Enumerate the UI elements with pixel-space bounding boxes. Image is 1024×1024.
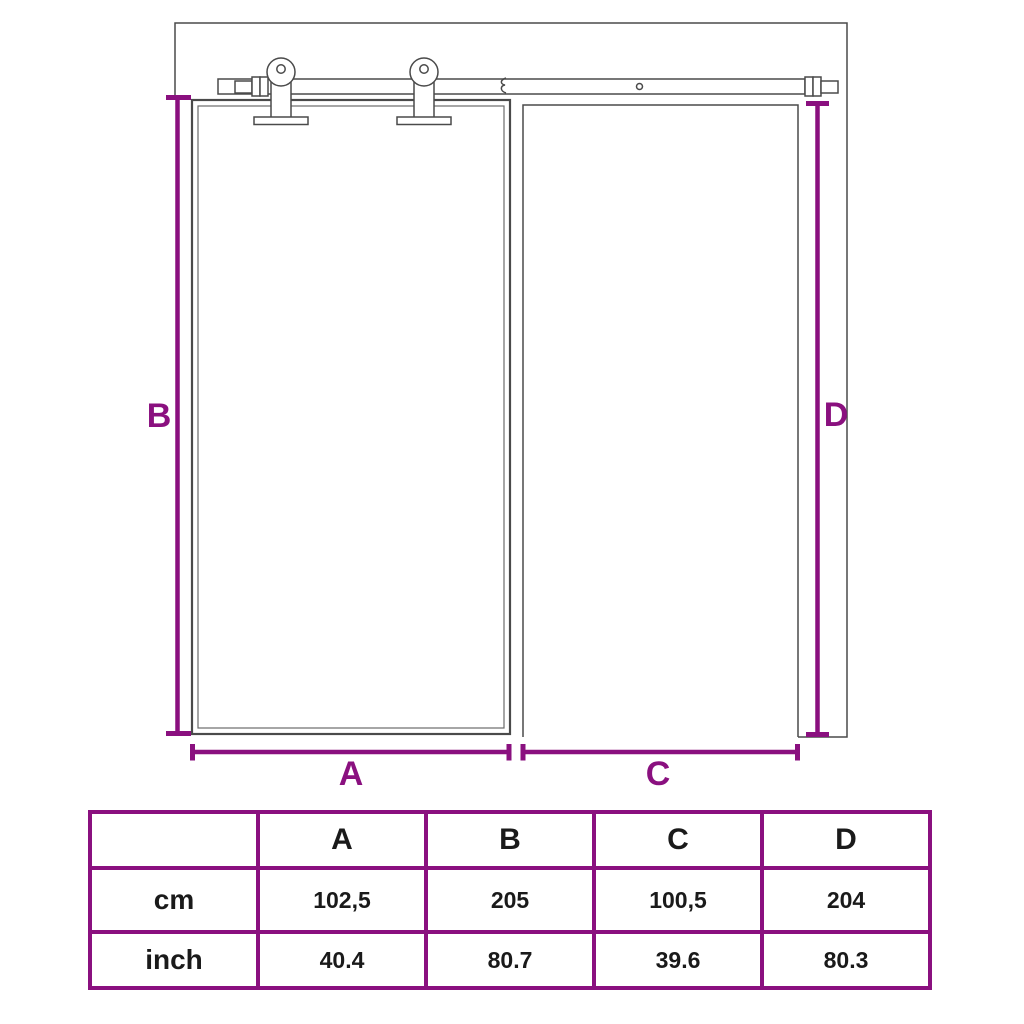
cell-cm-a: 102,5 bbox=[258, 868, 426, 932]
dimension-label-d: D bbox=[824, 396, 849, 434]
dimension-label-a: A bbox=[339, 755, 364, 793]
rail-break-mark bbox=[498, 78, 509, 93]
header-empty-cell bbox=[90, 812, 258, 868]
row-label-cm: cm bbox=[90, 868, 258, 932]
sliding-rail bbox=[218, 77, 838, 96]
header-cell-d: D bbox=[762, 812, 930, 868]
row-label-inch: inch bbox=[90, 932, 258, 988]
header-cell-b: B bbox=[426, 812, 594, 868]
cell-cm-b: 205 bbox=[426, 868, 594, 932]
dimension-line-d: D bbox=[806, 104, 848, 735]
header-cell-a: A bbox=[258, 812, 426, 868]
cell-inch-d: 80.3 bbox=[762, 932, 930, 988]
rail-end-stop-right bbox=[805, 77, 838, 96]
cell-inch-b: 80.7 bbox=[426, 932, 594, 988]
dimension-label-b: B bbox=[147, 397, 172, 435]
doorway-opening bbox=[523, 105, 798, 737]
cell-inch-a: 40.4 bbox=[258, 932, 426, 988]
cell-cm-d: 204 bbox=[762, 868, 930, 932]
dimension-label-c: C bbox=[646, 755, 671, 793]
table-row-cm: cm 102,5 205 100,5 204 bbox=[90, 868, 930, 932]
door-panel bbox=[192, 100, 510, 734]
dimension-line-a: A bbox=[193, 744, 510, 793]
dimensions-table-wrap: A B C D cm 102,5 205 100,5 204 inch 40.4… bbox=[88, 810, 928, 990]
cell-cm-c: 100,5 bbox=[594, 868, 762, 932]
table-header-row: A B C D bbox=[90, 812, 930, 868]
product-dimension-sheet: B D A C bbox=[0, 0, 1024, 1024]
dimension-line-c: C bbox=[523, 744, 798, 793]
header-cell-c: C bbox=[594, 812, 762, 868]
table-row-inch: inch 40.4 80.7 39.6 80.3 bbox=[90, 932, 930, 988]
cell-inch-c: 39.6 bbox=[594, 932, 762, 988]
dimension-line-b: B bbox=[147, 98, 191, 734]
dimensions-table: A B C D cm 102,5 205 100,5 204 inch 40.4… bbox=[88, 810, 932, 990]
